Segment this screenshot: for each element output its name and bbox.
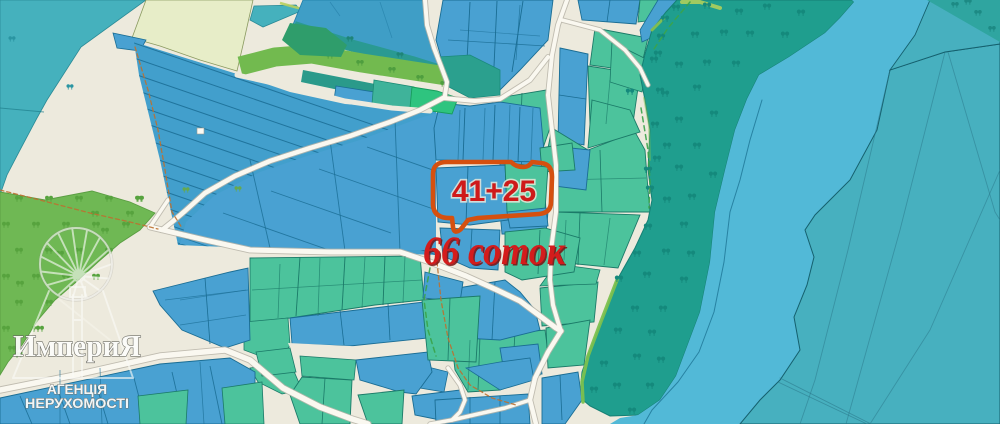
svg-text:41+25: 41+25 xyxy=(452,175,536,208)
svg-text:НЕРУХОМОСТІ: НЕРУХОМОСТІ xyxy=(25,395,129,411)
svg-text:ИмпериЯ: ИмпериЯ xyxy=(13,328,141,363)
svg-text:66 соток: 66 соток xyxy=(423,228,567,273)
